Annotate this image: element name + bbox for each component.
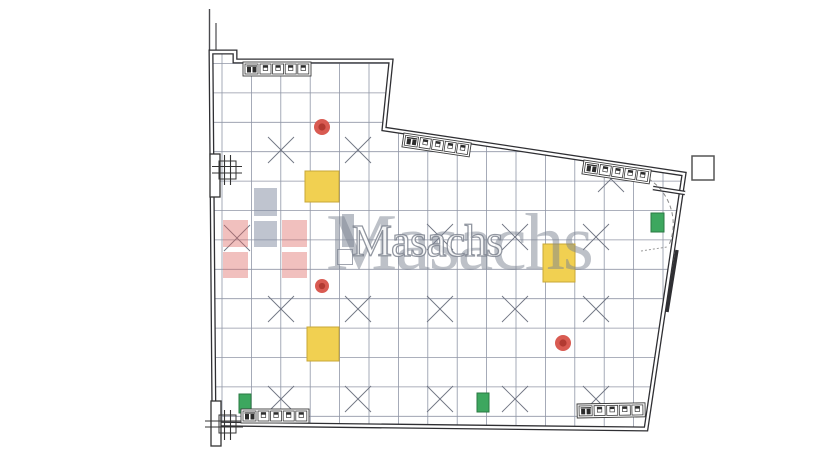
dock-strip — [577, 403, 645, 418]
dock-strip-glyph — [592, 166, 597, 172]
dock-strip-glyph — [247, 67, 251, 73]
exterior-box — [692, 156, 714, 180]
door-detail — [629, 171, 685, 312]
perimeter-wall-cavity — [211, 52, 684, 429]
green-marker — [477, 393, 489, 412]
green-marker — [651, 213, 664, 232]
dock-strip-cell-glyph — [610, 407, 615, 409]
dock-strip-cell-glyph — [635, 406, 640, 408]
column-detail-left — [210, 154, 242, 197]
red-dot-core — [318, 123, 325, 130]
red-dot-core — [559, 339, 566, 346]
structural-details — [205, 154, 714, 446]
dock-strip-glyph — [406, 139, 411, 145]
dock-strip-glyph — [245, 414, 249, 420]
dock-strip-glyph — [412, 139, 417, 145]
dock-strip — [241, 409, 309, 423]
yellow-zone-marker — [305, 171, 339, 202]
perimeter-wall-outer — [211, 52, 684, 429]
dock-strip-cell-glyph — [263, 66, 268, 68]
dock-strip-glyph — [251, 414, 255, 420]
dock-strip-cell-glyph — [622, 407, 627, 409]
dock-strip-cell-glyph — [597, 407, 602, 409]
floor-grid — [206, 45, 700, 436]
dock-strip-cell-glyph — [286, 413, 291, 415]
dock-strip-glyph — [586, 166, 591, 172]
floor-plan-drawing — [0, 0, 835, 467]
dock-strip-cell-glyph — [276, 66, 281, 68]
dock-strip-cell-glyph — [299, 413, 304, 415]
red-dot-core — [319, 283, 325, 289]
dock-strip-cell-glyph — [261, 413, 266, 415]
dock-strip-cell-glyph — [301, 66, 306, 68]
dock-strip-cell-glyph — [288, 66, 293, 68]
dock-strip-glyph — [253, 67, 257, 73]
dock-strip — [243, 62, 311, 76]
dock-strip-cell-glyph — [274, 413, 279, 415]
dock-strip-glyph — [587, 409, 591, 415]
yellow-zone-marker — [307, 327, 339, 361]
yellow-zone-marker — [543, 244, 575, 282]
dock-strip-glyph — [581, 409, 585, 415]
floor-plan-canvas: Masachs Masachs — [0, 0, 835, 467]
